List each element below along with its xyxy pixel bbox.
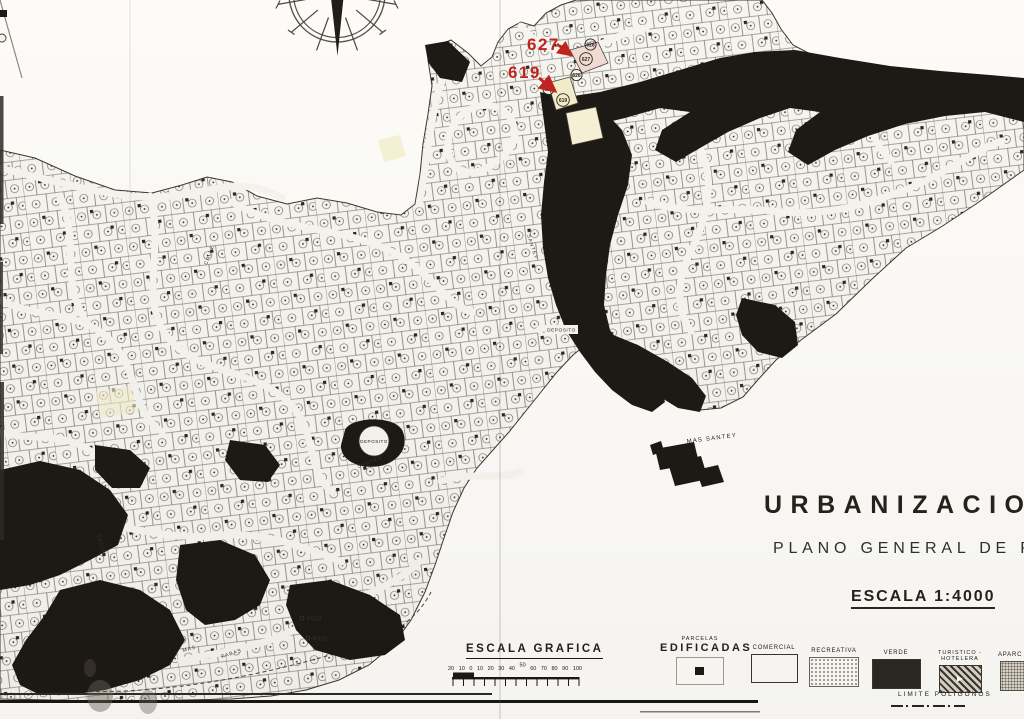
map-canvas: DEPOSITO DEPOSITO POZO POZO CALLE MAS FA… (0, 0, 1024, 719)
legend-swatch-edificadas (676, 657, 724, 685)
pozo-label: POZO (313, 637, 327, 643)
legend-limite-label: LIMITE POLIGONOS (898, 691, 992, 698)
pozo-label: POZO (307, 617, 321, 623)
legend-label: VERDE (870, 650, 922, 656)
parcel-number-628: 628 (586, 43, 595, 49)
parcel-number-627: 627 (582, 57, 591, 63)
compass-rose-icon (276, 0, 398, 56)
legend-swatch-verde (872, 659, 921, 689)
legend-label: APARC (998, 652, 1024, 658)
red-annotation-619: 619 (508, 63, 541, 83)
graphic-scale-title: ESCALA GRAFICA (466, 643, 603, 659)
deposito-label: DEPOSITO (547, 328, 576, 334)
scale-tick: 100 (573, 666, 582, 672)
parcel-number-619: 619 (559, 98, 568, 104)
legend-label: EDIFICADAS (660, 642, 740, 654)
legend-item-verde: VERDE (870, 650, 922, 689)
scale-tick: 90 (562, 666, 568, 672)
scale-tick: 80 (552, 666, 558, 672)
scanned-parcel-map-page: DEPOSITO DEPOSITO POZO POZO CALLE MAS FA… (0, 0, 1024, 719)
legend-item-aparcamiento: APARC (998, 652, 1024, 691)
scale-tick: 10 (459, 666, 465, 672)
faded-highlight (378, 135, 406, 162)
legend-label: TURISTICO - HOTELERA (926, 650, 994, 662)
deposito-marker-west: DEPOSITO (359, 426, 389, 456)
legend-limite-line (891, 705, 965, 707)
scale-tick: 20 (488, 666, 494, 672)
scale-tick: 70 (541, 666, 547, 672)
deposito-marker-center: DEPOSITO (536, 325, 578, 334)
legend-swatch-comercial (751, 654, 798, 683)
scale-tick: 60 (530, 666, 536, 672)
legend-swatch-turistico: ▶ (939, 665, 982, 693)
map-subtitle: PLANO GENERAL DE PARC (773, 540, 1024, 558)
scale-tick: 20 (448, 666, 454, 672)
legend-item-recreativa: RECREATIVA (806, 648, 862, 687)
scale-tick: 30 (498, 666, 504, 672)
scale-tick: 0 (469, 666, 472, 672)
legend-label: COMERCIAL (748, 645, 800, 651)
graphic-scale-ticks: 20 10 0 10 20 30 40 50 60 70 80 90 100 (448, 666, 582, 672)
red-annotation-627: 627 (527, 35, 560, 55)
legend-swatch-recreativa (809, 657, 859, 687)
legend-label: RECREATIVA (806, 648, 862, 654)
map-title: URBANIZACION "MA (764, 491, 1024, 520)
map-scale-text: ESCALA 1:4000 (851, 588, 995, 609)
faded-highlight (566, 107, 603, 145)
deposito-label: DEPOSITO (360, 439, 388, 444)
legend-item-comercial: COMERCIAL (748, 645, 800, 683)
scale-tick: 10 (477, 666, 483, 672)
arrow-icon: ▶ (957, 674, 963, 683)
mas-santey-label: MAS SANTEY (686, 433, 737, 445)
legend-item-turistico: TURISTICO - HOTELERA ▶ (926, 650, 994, 693)
legend-item-edificadas: PARCELAS EDIFICADAS (660, 636, 740, 685)
mas-santey-buildings (650, 441, 724, 487)
legend-swatch-aparcamiento (1000, 661, 1024, 691)
scale-tick: 50 (520, 663, 526, 669)
parcel-number-626: 626 (572, 73, 581, 79)
graphic-scale-bar (452, 673, 579, 687)
scale-tick: 40 (509, 666, 515, 672)
